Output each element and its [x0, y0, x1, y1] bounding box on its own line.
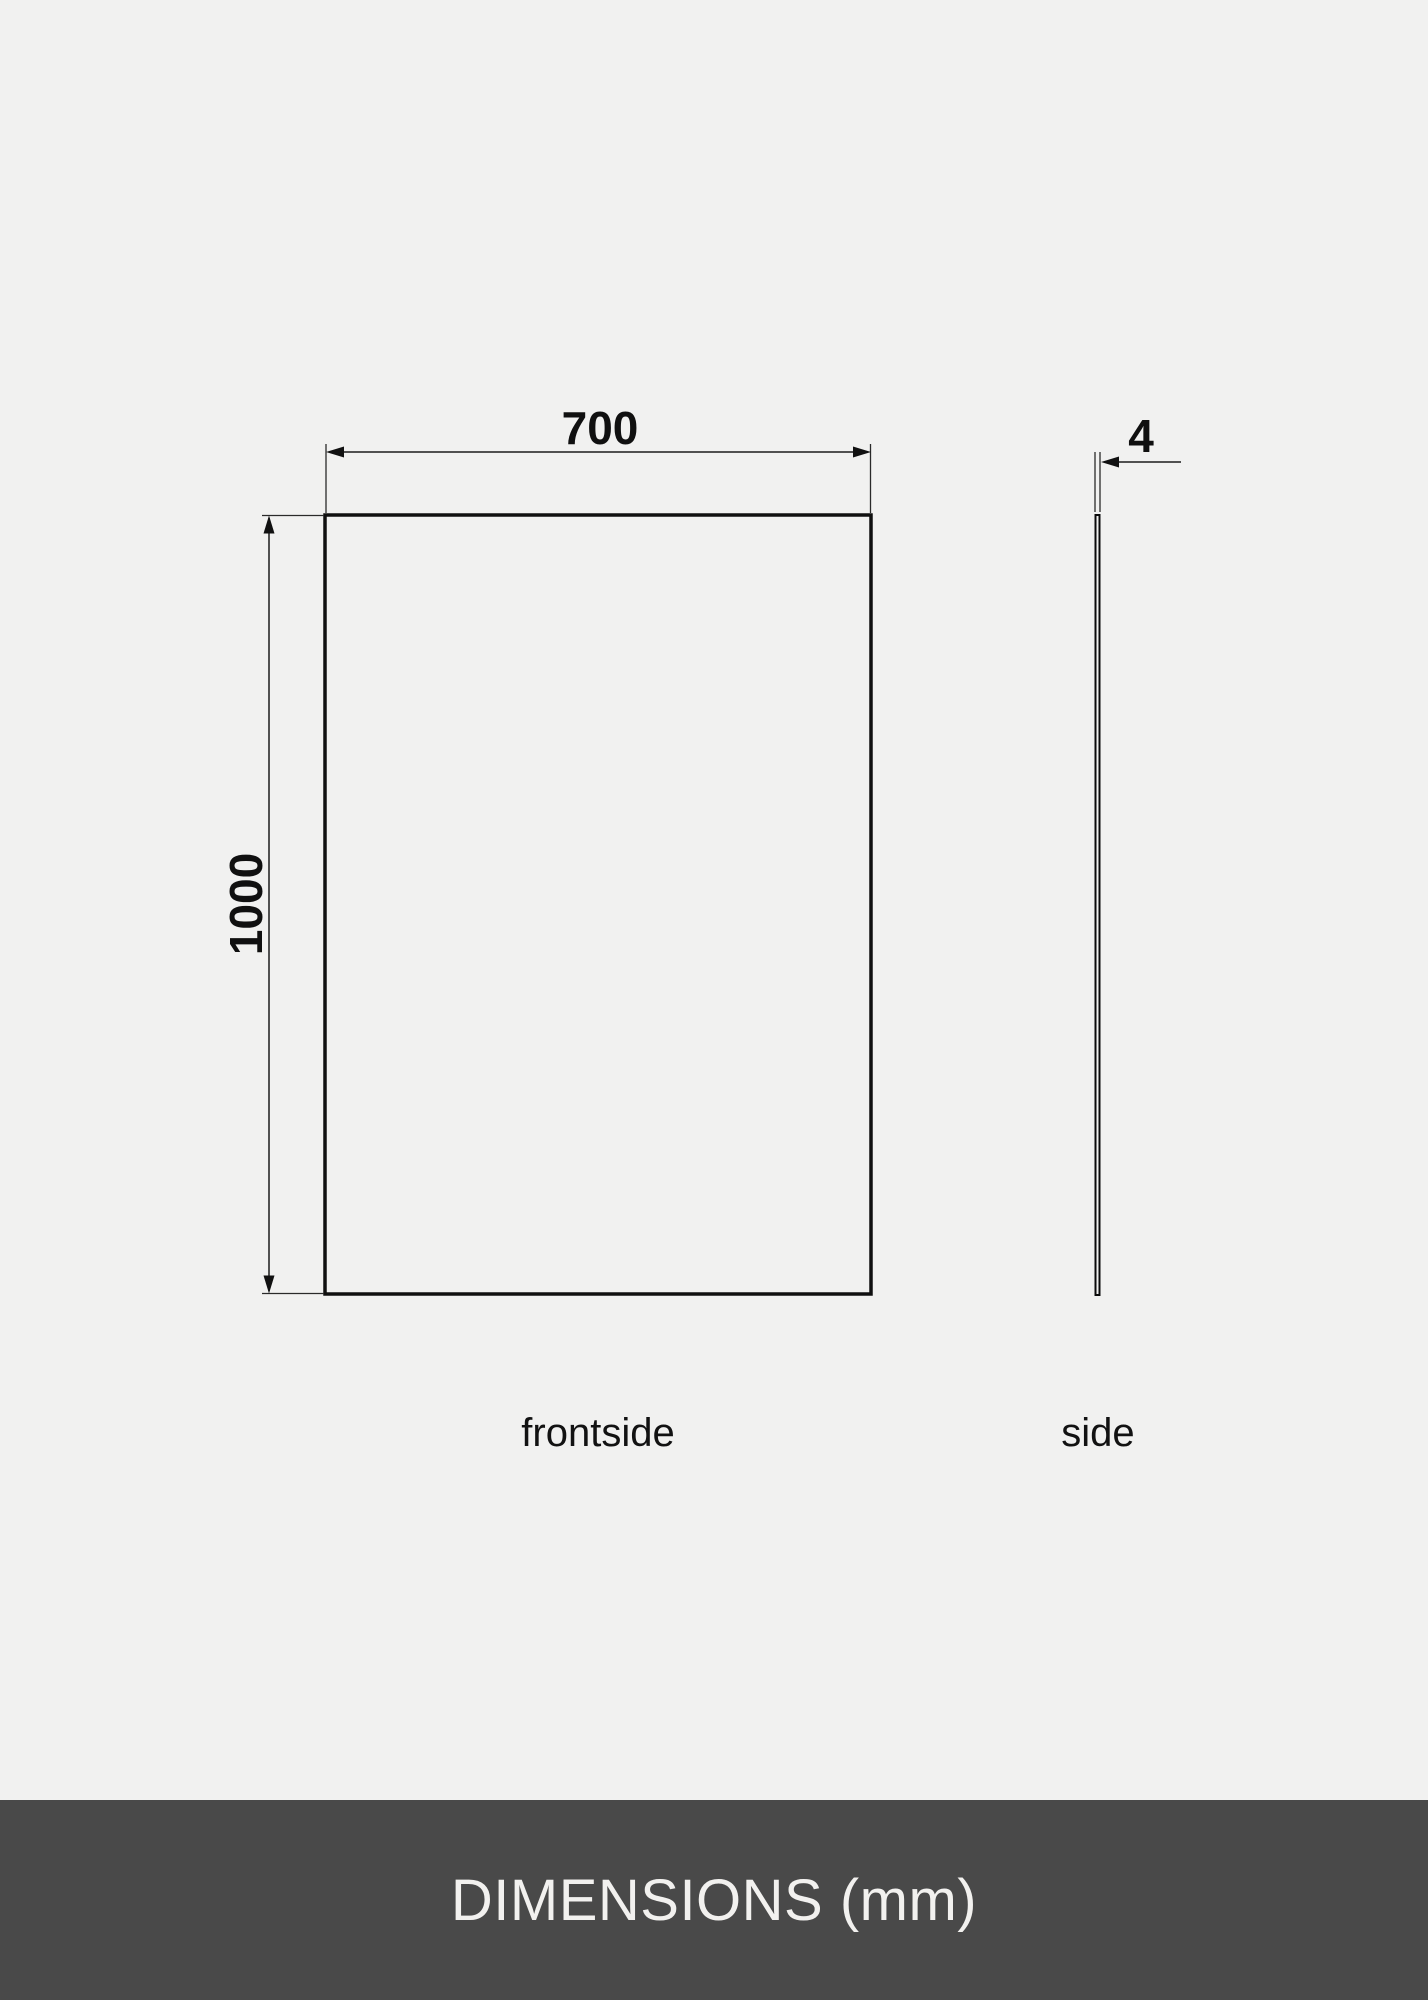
width-dimension-label: 700	[562, 402, 639, 454]
arrowhead-left-icon	[1101, 457, 1119, 468]
dimension-diagram-page: 700 1000 frontside 4	[0, 0, 1428, 2000]
height-dimension: 1000	[220, 516, 324, 1294]
front-view-caption: frontside	[521, 1411, 674, 1455]
footer-title: DIMENSIONS (mm)	[451, 1867, 977, 1934]
side-view: 4 side	[1061, 410, 1181, 1455]
front-view: 700 1000 frontside	[220, 402, 871, 1455]
side-view-panel	[1096, 515, 1100, 1295]
technical-drawing: 700 1000 frontside 4	[0, 0, 1428, 1560]
arrowhead-left-icon	[326, 447, 344, 458]
height-dimension-label: 1000	[220, 853, 272, 955]
front-view-outline	[325, 515, 871, 1294]
thickness-dimension: 4	[1095, 410, 1181, 512]
side-view-caption: side	[1061, 1411, 1134, 1455]
arrowhead-down-icon	[264, 1276, 275, 1294]
arrowhead-up-icon	[264, 516, 275, 534]
thickness-dimension-label: 4	[1128, 410, 1154, 462]
arrowhead-right-icon	[853, 447, 871, 458]
width-dimension: 700	[326, 402, 871, 513]
footer-bar: DIMENSIONS (mm)	[0, 1800, 1428, 2000]
